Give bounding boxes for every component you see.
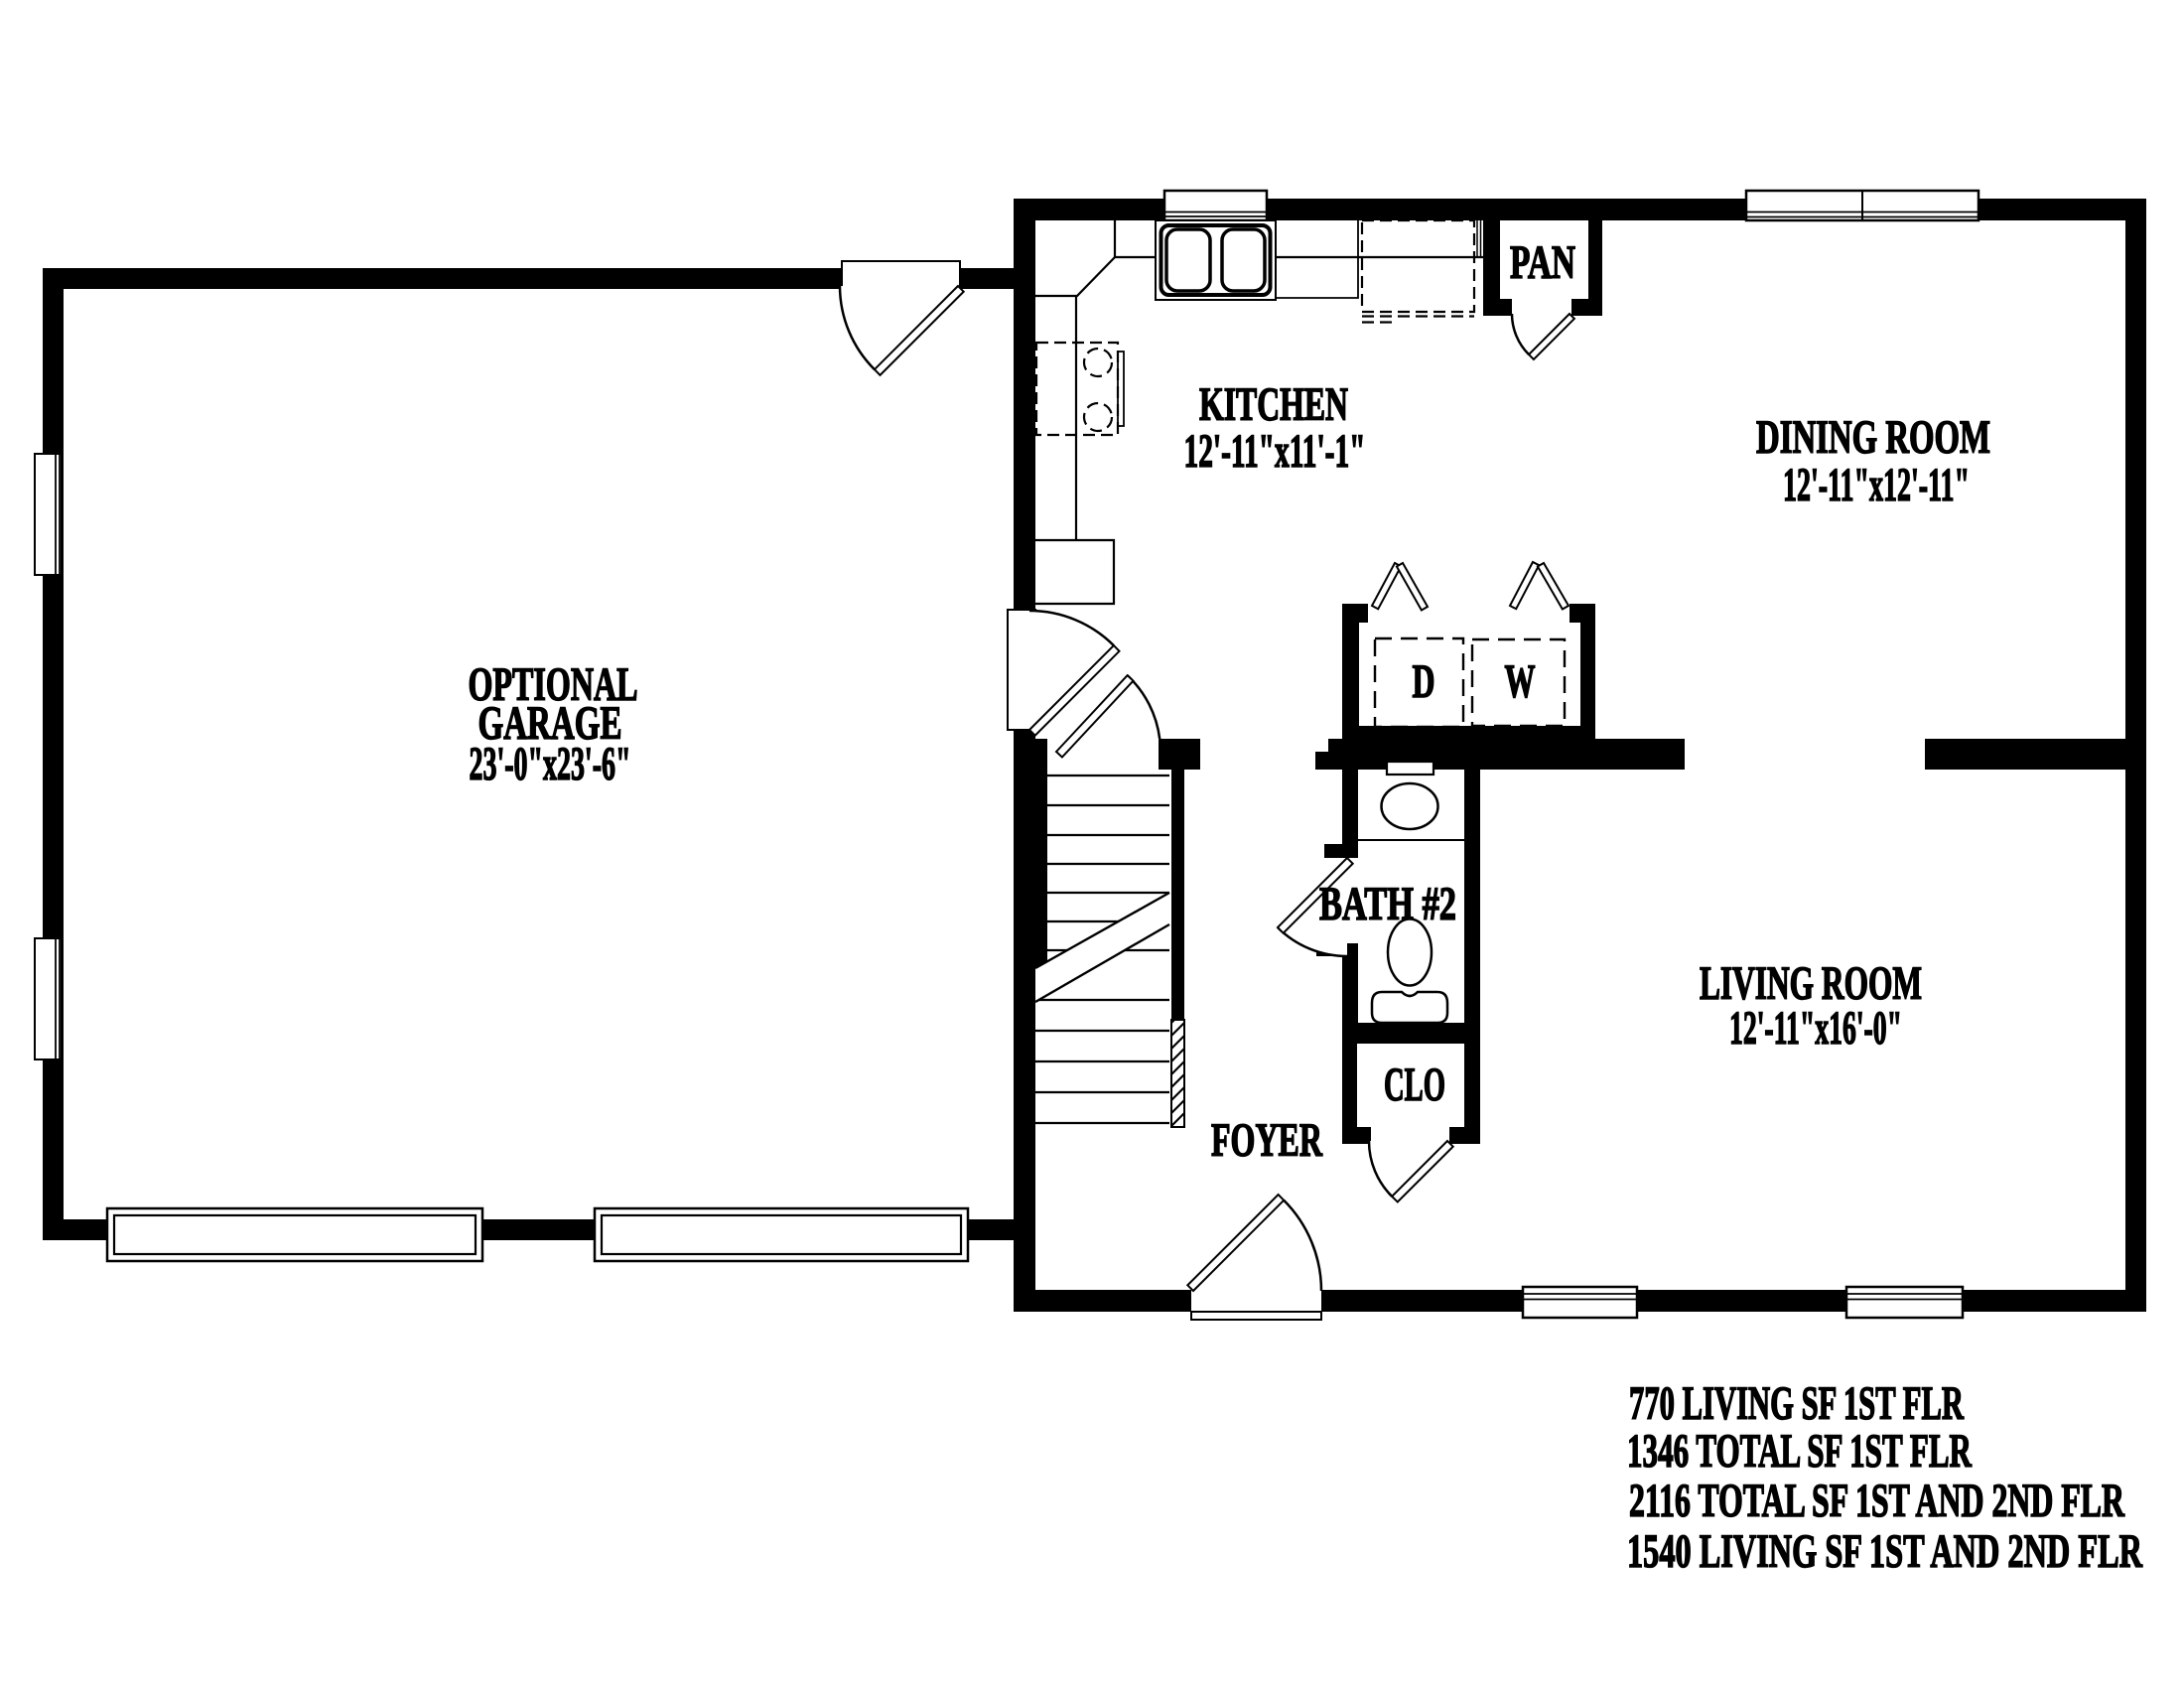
svg-text:770 LIVING SF 1ST FLR: 770 LIVING SF 1ST FLR: [1629, 1377, 1965, 1430]
svg-text:1346 TOTAL SF 1ST FLR: 1346 TOTAL SF 1ST FLR: [1627, 1425, 1973, 1478]
svg-text:D: D: [1413, 655, 1435, 708]
svg-text:1540 LIVING SF 1ST AND 2ND FLR: 1540 LIVING SF 1ST AND 2ND FLR: [1627, 1525, 2143, 1578]
svg-text:23'-0"x23'-6": 23'-0"x23'-6": [470, 738, 631, 790]
svg-text:KITCHEN: KITCHEN: [1199, 378, 1348, 431]
svg-text:PAN: PAN: [1510, 236, 1575, 289]
svg-text:BATH #2: BATH #2: [1319, 878, 1456, 930]
svg-text:FOYER: FOYER: [1211, 1114, 1323, 1167]
svg-text:2116 TOTAL SF 1ST AND 2ND FLR: 2116 TOTAL SF 1ST AND 2ND FLR: [1629, 1475, 2125, 1527]
svg-text:W: W: [1505, 655, 1536, 708]
svg-text:DINING ROOM: DINING ROOM: [1756, 411, 1990, 464]
svg-text:12'-11"x12'-11": 12'-11"x12'-11": [1783, 459, 1970, 511]
svg-text:CLO: CLO: [1384, 1058, 1445, 1111]
svg-text:12'-11"x11'-1": 12'-11"x11'-1": [1184, 425, 1366, 478]
svg-text:12'-11"x16'-0": 12'-11"x16'-0": [1729, 1002, 1902, 1055]
